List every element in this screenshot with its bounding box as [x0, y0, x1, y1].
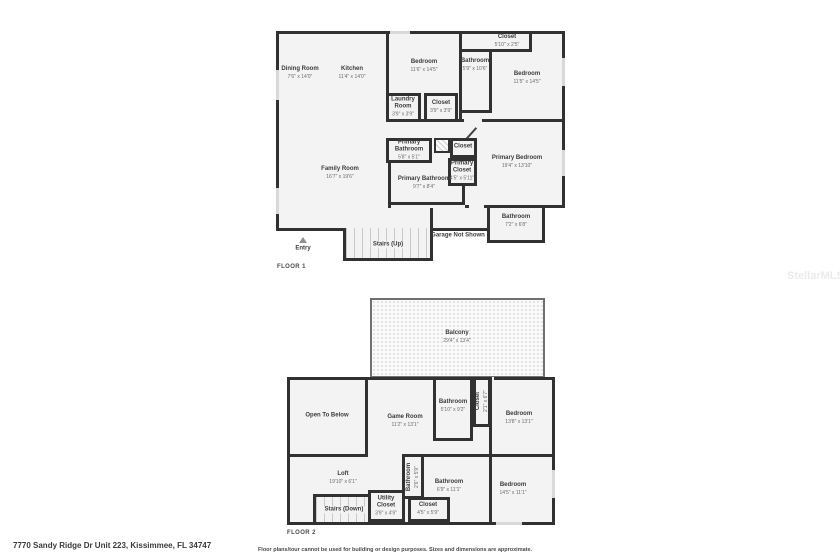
stairs-up-label: Stairs (Up): [371, 242, 405, 249]
window-marker: [496, 522, 522, 525]
room-name: Dining Room: [281, 66, 318, 73]
room-label-bath-a: Bathroom 5'10" x 9'2": [439, 399, 467, 413]
room-dims: 11'6" x 14'5": [410, 67, 437, 73]
room-name: Bathroom: [502, 214, 530, 221]
room-name: Bathroom: [461, 58, 489, 65]
wall-segment: [276, 228, 346, 231]
room-name: Closet: [495, 34, 520, 41]
room-label-bedroom-right: Bedroom 11'5" x 14'5": [513, 71, 540, 85]
window-marker: [562, 150, 565, 176]
room-label-bath-b: Bathroom 2'6" x 5'9": [406, 463, 420, 491]
room-name: Bedroom: [505, 411, 532, 418]
room-dims: 5'10" x 9'2": [439, 407, 467, 413]
room-dims: 19'10" x 6'1": [329, 479, 356, 485]
room-dims: 7'6" x 14'0": [281, 74, 318, 80]
room-name: Utility Closet: [374, 496, 398, 510]
room-dims: 6'9" x 11'1": [435, 487, 463, 493]
window-marker: [552, 470, 555, 498]
room-label-bath-c: Bathroom 6'9" x 11'1": [435, 479, 463, 493]
shower-hatch: [434, 138, 450, 153]
wall-segment: [343, 258, 433, 261]
room-dims: 14'5" x 11'1": [499, 490, 526, 496]
window-marker: [276, 188, 279, 214]
room-name: Primary Closet: [449, 161, 475, 175]
room-name: Closet: [475, 390, 482, 412]
window-marker: [562, 58, 565, 86]
room-label-primary-bath: Primary Bathroom 9'7" x 8'4": [398, 176, 450, 190]
room-dims: 5'10" x 2'5": [495, 42, 520, 48]
floorplan-page: Dining Room 7'6" x 14'0" Kitchen 11'4" x…: [0, 0, 840, 560]
window-marker: [276, 70, 279, 100]
room-dims: 11'5" x 14'5": [513, 79, 540, 85]
room-name: Bedroom: [499, 482, 526, 489]
room-label-closet-mid: Closet 3'9" x 3'9": [430, 100, 452, 114]
door-opening: [469, 205, 484, 208]
property-address: 7770 Sandy Ridge Dr Unit 223, Kissimmee,…: [13, 541, 211, 550]
room-label-family: Family Room 16'7" x 19'6": [321, 166, 359, 180]
floor1-plate-lower: [279, 205, 487, 228]
room-dims: 9'7" x 8'4": [398, 184, 450, 190]
room-dims: 3'9" x 4'9": [374, 510, 398, 516]
wall-segment: [402, 454, 555, 457]
room-name: Kitchen: [338, 66, 365, 73]
room-dims: 4'5" x 5'9": [417, 510, 439, 516]
room-label-utility: Utility Closet 3'9" x 4'9": [374, 496, 398, 517]
room-name: Bedroom: [513, 71, 540, 78]
room-name: Bathroom: [406, 463, 413, 491]
room-dims: 4'5" x 5'11": [449, 175, 475, 181]
room-dims: 2'1" x 6'7": [483, 390, 489, 412]
wall-segment: [313, 494, 316, 522]
wall-segment: [388, 202, 465, 205]
room-dims: 29'4" x 13'4": [443, 338, 470, 344]
window-marker: [390, 31, 410, 34]
room-label-bedroom-mid: Bedroom 11'6" x 14'5": [410, 59, 437, 73]
room-label-primary-closet: Primary Closet 4'5" x 5'11": [449, 161, 475, 182]
room-name: Closet: [417, 502, 439, 509]
room-label-bedroom-b: Bedroom 14'5" x 11'1": [499, 482, 526, 496]
open-to-below-label: Open To Below: [305, 413, 348, 420]
room-label-game: Game Room 11'2" x 13'1": [387, 414, 422, 428]
room-name: Bedroom: [410, 59, 437, 66]
room-name: Game Room: [387, 414, 422, 421]
room-label-bathroom-br: Bathroom 7'2" x 6'8": [502, 214, 530, 228]
room-dims: 3'9" x 3'9": [390, 111, 416, 117]
room-label-closet-b: Closet 4'5" x 5'9": [417, 502, 439, 516]
wall-segment: [552, 380, 555, 525]
wall-segment: [343, 228, 346, 261]
room-label-loft: Loft 19'10" x 6'1": [329, 471, 356, 485]
room-name: Closet: [430, 100, 452, 107]
room-label-closet-a: Closet 2'1" x 6'7": [475, 390, 489, 412]
room-name: Family Room: [321, 166, 359, 173]
wall-segment: [489, 377, 492, 457]
wall-segment: [313, 494, 370, 497]
room-name: Balcony: [443, 330, 470, 337]
room-dims: 5'8" x 5'1": [394, 154, 424, 160]
room-dims: 16'7" x 19'6": [321, 174, 359, 180]
room-label-laundry: Laundry Room 3'9" x 3'9": [390, 97, 416, 118]
room-label-bedroom-a: Bedroom 13'8" x 13'1": [505, 411, 532, 425]
door-opening: [464, 119, 482, 122]
room-name: Bathroom: [435, 479, 463, 486]
room-dims: 11'4" x 14'0": [338, 74, 365, 80]
wall-segment: [489, 454, 492, 522]
room-dims: 3'9" x 3'9": [430, 108, 452, 114]
floor2-title: FLOOR 2: [287, 530, 316, 536]
watermark: StellarMLS: [787, 270, 840, 282]
garage-note: Garage Not Shown: [431, 233, 485, 240]
disclaimer-text: Floor plans/tour cannot be used for buil…: [235, 547, 555, 553]
stairs-down-label: Stairs (Down): [323, 507, 366, 514]
room-name: Bathroom: [439, 399, 467, 406]
room-dims: 5'9" x 10'6": [461, 66, 489, 72]
wall-segment: [388, 161, 391, 208]
room-label-balcony: Balcony 29'4" x 13'4": [443, 330, 470, 344]
room-name: Closet: [454, 144, 472, 151]
entry-label: Entry: [295, 246, 310, 253]
room-dims: 7'2" x 6'8": [502, 222, 530, 228]
wall-segment: [430, 228, 490, 231]
room-label-kitchen: Kitchen 11'4" x 14'0": [338, 66, 365, 80]
room-label-closet-top: Closet 5'10" x 2'5": [495, 34, 520, 48]
room-name: Primary Bathroom: [394, 140, 424, 154]
room-label-primary-bedroom: Primary Bedroom 19'4" x 13'10": [492, 155, 542, 169]
room-dims: 11'2" x 13'1": [387, 422, 422, 428]
entry-arrow-icon: [299, 237, 307, 243]
room-dims: 13'8" x 13'1": [505, 419, 532, 425]
wall-segment: [459, 110, 492, 113]
room-label-bathroom-top: Bathroom 5'9" x 10'6": [461, 58, 489, 72]
room-name: Laundry Room: [390, 97, 416, 111]
room-label-closet-hall: Closet: [454, 144, 472, 151]
room-name: Primary Bedroom: [492, 155, 542, 162]
wall-segment: [489, 52, 492, 113]
room-name: Primary Bathroom: [398, 176, 450, 183]
room-name: Loft: [329, 471, 356, 478]
room-label-dining: Dining Room 7'6" x 14'0": [281, 66, 318, 80]
floor1-title: FLOOR 1: [277, 264, 306, 270]
room-label-primary-bath-small: Primary Bathroom 5'8" x 5'1": [394, 140, 424, 161]
room-dims: 19'4" x 13'10": [492, 163, 542, 169]
room-dims: 2'6" x 5'9": [414, 463, 420, 491]
